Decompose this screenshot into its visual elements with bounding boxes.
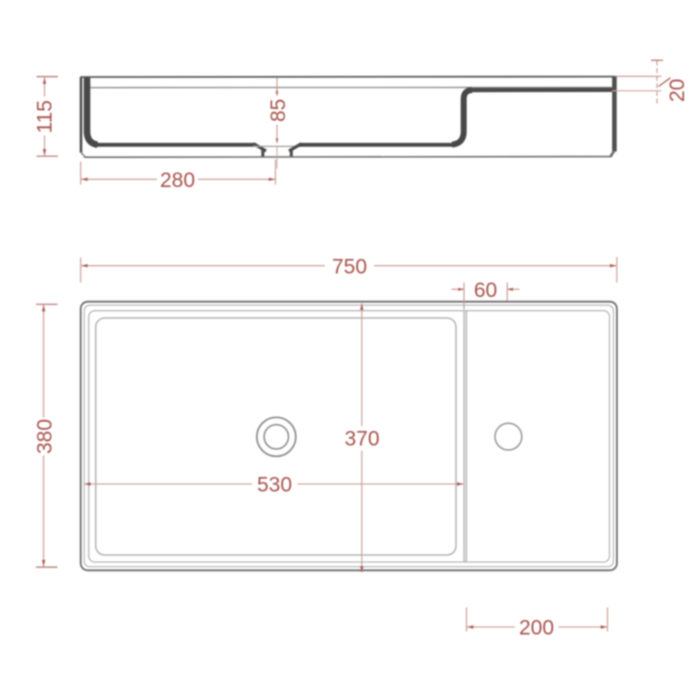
svg-text:60: 60 xyxy=(474,279,497,302)
svg-text:85: 85 xyxy=(267,99,290,122)
svg-text:530: 530 xyxy=(257,474,292,497)
svg-text:115: 115 xyxy=(33,100,56,133)
svg-text:750: 750 xyxy=(332,255,367,278)
svg-text:280: 280 xyxy=(160,169,195,192)
svg-text:20: 20 xyxy=(666,79,689,102)
svg-text:370: 370 xyxy=(344,428,379,451)
svg-text:380: 380 xyxy=(33,419,56,454)
svg-text:200: 200 xyxy=(519,617,554,640)
